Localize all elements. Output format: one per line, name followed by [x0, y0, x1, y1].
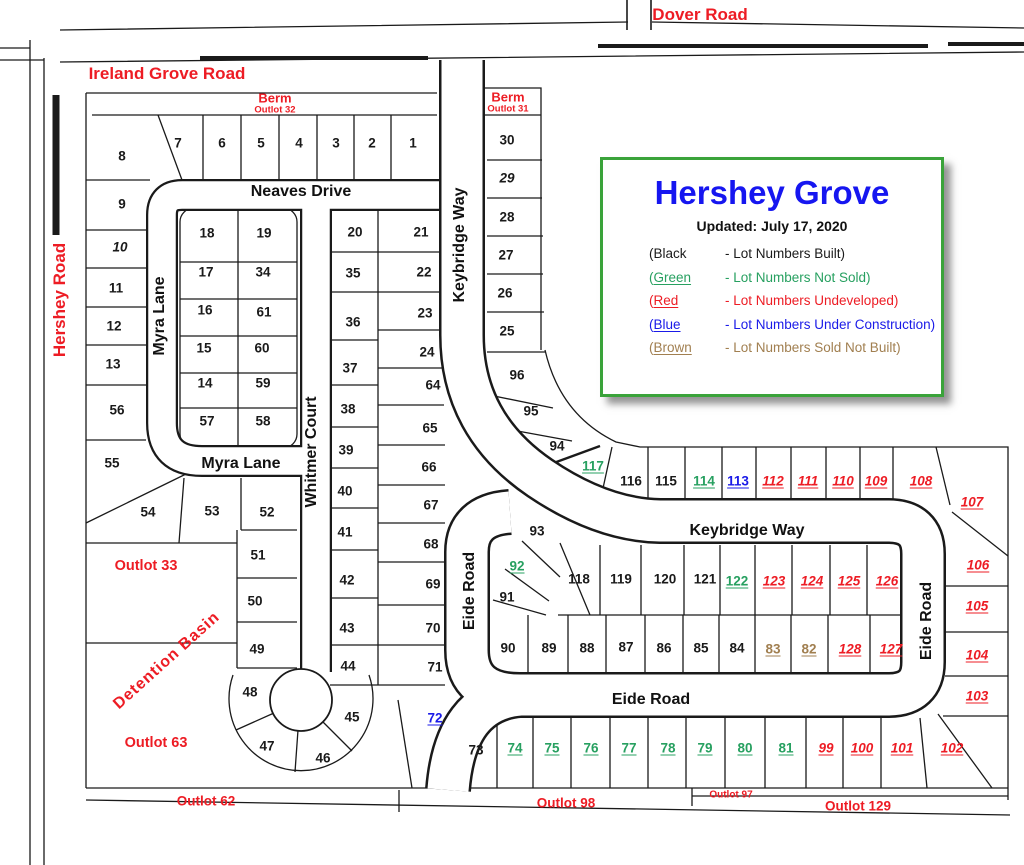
lot-24: 24 [419, 345, 434, 360]
legend-row-black: (Black- Lot Numbers Built) [649, 246, 941, 261]
lot-109: 109 [865, 474, 888, 489]
updated-date: Updated: July 17, 2020 [603, 218, 941, 234]
lot-58: 58 [255, 414, 270, 429]
lot-125: 125 [838, 574, 861, 589]
legend-rows: (Black- Lot Numbers Built)(Green- Lot Nu… [649, 246, 941, 355]
lot-7: 7 [174, 136, 182, 151]
lot-122: 122 [726, 574, 749, 589]
lot-94: 94 [549, 439, 564, 454]
lot-45: 45 [344, 710, 359, 725]
lot-49: 49 [249, 642, 264, 657]
legend-color-word: (Blue [649, 317, 725, 332]
label-berm-3: Berm [258, 91, 291, 106]
lot-42: 42 [339, 573, 354, 588]
lot-119: 119 [610, 572, 632, 587]
lot-21: 21 [413, 225, 428, 240]
lot-104: 104 [966, 648, 989, 663]
label-eide-road-14: Eide Road [918, 582, 936, 660]
lot-29: 29 [499, 171, 514, 186]
lot-86: 86 [656, 641, 671, 656]
lot-15: 15 [196, 341, 211, 356]
lot-75: 75 [544, 741, 559, 756]
lot-108: 108 [910, 474, 933, 489]
legend-desc: - Lot Numbers Undeveloped) [725, 293, 898, 308]
legend-row-blue: (Blue- Lot Numbers Under Construction) [649, 317, 941, 332]
legend-word: Blue [654, 317, 681, 332]
lot-81: 81 [778, 741, 793, 756]
lot-115: 115 [655, 474, 677, 489]
legend-color-word: (Black [649, 246, 725, 261]
lot-12: 12 [106, 319, 121, 334]
lot-85: 85 [693, 641, 708, 656]
label-neaves-drive-7: Neaves Drive [251, 183, 352, 201]
lot-18: 18 [199, 226, 214, 241]
plat-map: Dover RoadIreland Grove RoadHershey Road… [0, 0, 1024, 865]
lot-25: 25 [499, 324, 514, 339]
lot-113: 113 [727, 474, 749, 489]
lot-41: 41 [337, 525, 352, 540]
lot-38: 38 [340, 402, 355, 417]
legend-row-red: (Red- Lot Numbers Undeveloped) [649, 293, 941, 308]
label-outlot-31-6: Outlot 31 [487, 104, 528, 115]
lot-46: 46 [315, 751, 330, 766]
lot-35: 35 [345, 266, 360, 281]
label-myra-lane-8: Myra Lane [151, 276, 169, 355]
lot-79: 79 [697, 741, 712, 756]
lot-20: 20 [347, 225, 362, 240]
lot-124: 124 [801, 574, 824, 589]
lot-22: 22 [416, 265, 431, 280]
lot-67: 67 [423, 498, 438, 513]
lot-91: 91 [499, 590, 514, 605]
label-outlot-97-21: Outlot 97 [709, 790, 752, 801]
lot-92: 92 [509, 559, 524, 574]
lot-60: 60 [254, 341, 269, 356]
lot-101: 101 [891, 741, 914, 756]
lot-84: 84 [729, 641, 744, 656]
lot-47: 47 [259, 739, 274, 754]
legend-desc: - Lot Numbers Built) [725, 246, 845, 261]
lot-13: 13 [105, 357, 120, 372]
legend-desc: - Lot Numbers Sold Not Built) [725, 340, 901, 355]
label-keybridge-way-12: Keybridge Way [690, 522, 805, 540]
lot-114: 114 [693, 474, 715, 489]
lot-1: 1 [409, 136, 417, 151]
subdivision-title: Hershey Grove [603, 174, 941, 212]
lot-74: 74 [507, 741, 522, 756]
lot-6: 6 [218, 136, 226, 151]
lot-65: 65 [422, 421, 437, 436]
lot-27: 27 [498, 248, 513, 263]
lot-56: 56 [109, 403, 124, 418]
lot-126: 126 [876, 574, 899, 589]
label-outlot-98-20: Outlot 98 [537, 796, 596, 811]
lot-89: 89 [541, 641, 556, 656]
lot-76: 76 [583, 741, 598, 756]
lot-103: 103 [966, 689, 989, 704]
lot-123: 123 [763, 574, 786, 589]
lot-44: 44 [340, 659, 355, 674]
lot-111: 111 [798, 474, 819, 489]
lot-93: 93 [529, 524, 544, 539]
lot-102: 102 [941, 741, 964, 756]
lot-69: 69 [425, 577, 440, 592]
lot-59: 59 [255, 376, 270, 391]
lot-3: 3 [332, 136, 340, 151]
lot-30: 30 [499, 133, 514, 148]
lot-120: 120 [654, 572, 677, 587]
legend-color-word: (Red [649, 293, 725, 308]
lot-17: 17 [198, 265, 213, 280]
lot-95: 95 [523, 404, 538, 419]
lot-106: 106 [967, 558, 990, 573]
lot-80: 80 [737, 741, 752, 756]
label-outlot-63-18: Outlot 63 [125, 735, 188, 751]
lot-83: 83 [765, 642, 780, 657]
lot-112: 112 [762, 474, 784, 489]
label-outlot-32-4: Outlot 32 [254, 105, 295, 116]
lot-16: 16 [197, 303, 212, 318]
lot-57: 57 [199, 414, 214, 429]
lot-36: 36 [345, 315, 360, 330]
lot-105: 105 [966, 599, 989, 614]
label-ireland-grove-road-1: Ireland Grove Road [89, 64, 246, 84]
lot-10: 10 [112, 240, 127, 255]
lot-8: 8 [118, 149, 126, 164]
lot-121: 121 [694, 572, 717, 587]
lot-53: 53 [204, 504, 219, 519]
lot-39: 39 [338, 443, 353, 458]
lot-100: 100 [851, 741, 874, 756]
lot-82: 82 [801, 642, 816, 657]
lot-88: 88 [579, 641, 594, 656]
legend-color-word: (Green [649, 270, 725, 285]
label-myra-lane-9: Myra Lane [201, 455, 280, 473]
label-berm-5: Berm [491, 90, 524, 105]
legend-row-brown: (Brown- Lot Numbers Sold Not Built) [649, 340, 941, 355]
legend-word: Black [654, 246, 687, 261]
label-keybridge-way-11: Keybridge Way [451, 188, 469, 303]
legend-color-word: (Brown [649, 340, 725, 355]
lot-40: 40 [337, 484, 352, 499]
lot-23: 23 [417, 306, 432, 321]
label-eide-road-13: Eide Road [461, 552, 479, 630]
label-eide-road-15: Eide Road [612, 691, 690, 709]
lot-117: 117 [582, 459, 604, 474]
lot-96: 96 [509, 368, 524, 383]
lot-71: 71 [427, 660, 442, 675]
lot-43: 43 [339, 621, 354, 636]
label-outlot-62-19: Outlot 62 [177, 794, 236, 809]
lot-64: 64 [425, 378, 440, 393]
legend-desc: - Lot Numbers Under Construction) [725, 317, 935, 332]
lot-19: 19 [256, 226, 271, 241]
whitmer-court-culdesac [270, 669, 332, 731]
lot-107: 107 [961, 495, 984, 510]
legend-row-green: (Green- Lot Numbers Not Sold) [649, 270, 941, 285]
lot-110: 110 [832, 474, 854, 489]
lot-14: 14 [197, 376, 212, 391]
lot-48: 48 [242, 685, 257, 700]
lot-78: 78 [660, 741, 675, 756]
lot-26: 26 [497, 286, 512, 301]
lot-73: 73 [468, 743, 483, 758]
lot-116: 116 [620, 474, 642, 489]
legend-word: Green [654, 270, 692, 285]
lot-87: 87 [618, 640, 633, 655]
lot-37: 37 [342, 361, 357, 376]
legend-word: Brown [654, 340, 692, 355]
lot-11: 11 [109, 281, 123, 296]
lot-54: 54 [140, 505, 155, 520]
lot-51: 51 [250, 548, 265, 563]
lot-2: 2 [368, 136, 376, 151]
lot-127: 127 [880, 642, 903, 657]
lot-34: 34 [255, 265, 270, 280]
lot-128: 128 [839, 642, 862, 657]
legend-desc: - Lot Numbers Not Sold) [725, 270, 871, 285]
lot-61: 61 [256, 305, 271, 320]
lot-77: 77 [621, 741, 636, 756]
lot-28: 28 [499, 210, 514, 225]
label-outlot-129-22: Outlot 129 [825, 799, 891, 814]
lot-9: 9 [118, 197, 126, 212]
lot-52: 52 [259, 505, 274, 520]
lot-4: 4 [295, 136, 303, 151]
label-hershey-road-2: Hershey Road [50, 243, 70, 357]
legend-word: Red [654, 293, 679, 308]
lot-99: 99 [818, 741, 833, 756]
lot-68: 68 [423, 537, 438, 552]
label-dover-road-0: Dover Road [652, 5, 747, 25]
lot-55: 55 [104, 456, 119, 471]
lot-118: 118 [568, 572, 590, 587]
lot-50: 50 [247, 594, 262, 609]
lot-66: 66 [421, 460, 436, 475]
legend-box: Hershey Grove Updated: July 17, 2020 (Bl… [600, 157, 944, 397]
label-outlot-33-16: Outlot 33 [115, 558, 178, 574]
lot-5: 5 [257, 136, 265, 151]
lot-72: 72 [427, 711, 442, 726]
label-whitmer-court-10: Whitmer Court [303, 396, 321, 507]
lot-70: 70 [425, 621, 440, 636]
lot-90: 90 [500, 641, 515, 656]
